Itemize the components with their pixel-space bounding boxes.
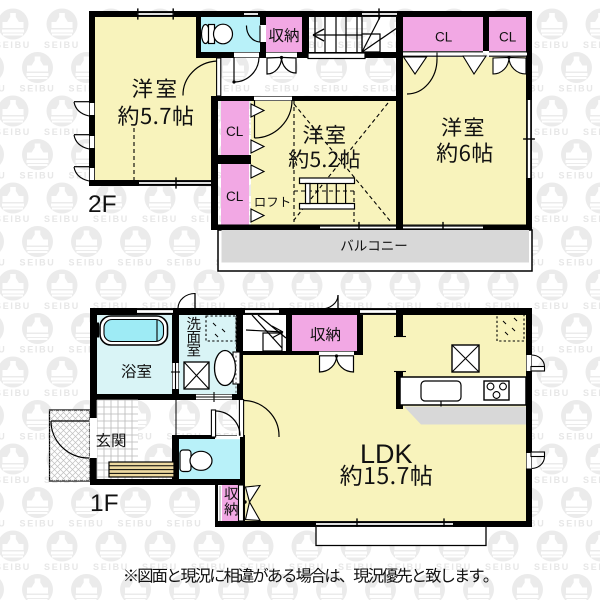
svg-text:CL: CL xyxy=(435,30,453,45)
svg-text:CL: CL xyxy=(226,124,244,139)
svg-text:CL: CL xyxy=(499,30,517,45)
svg-text:CL: CL xyxy=(226,189,244,204)
svg-text:1F: 1F xyxy=(90,490,119,517)
svg-text:2F: 2F xyxy=(88,191,117,218)
svg-text:LDK: LDK xyxy=(360,439,413,469)
